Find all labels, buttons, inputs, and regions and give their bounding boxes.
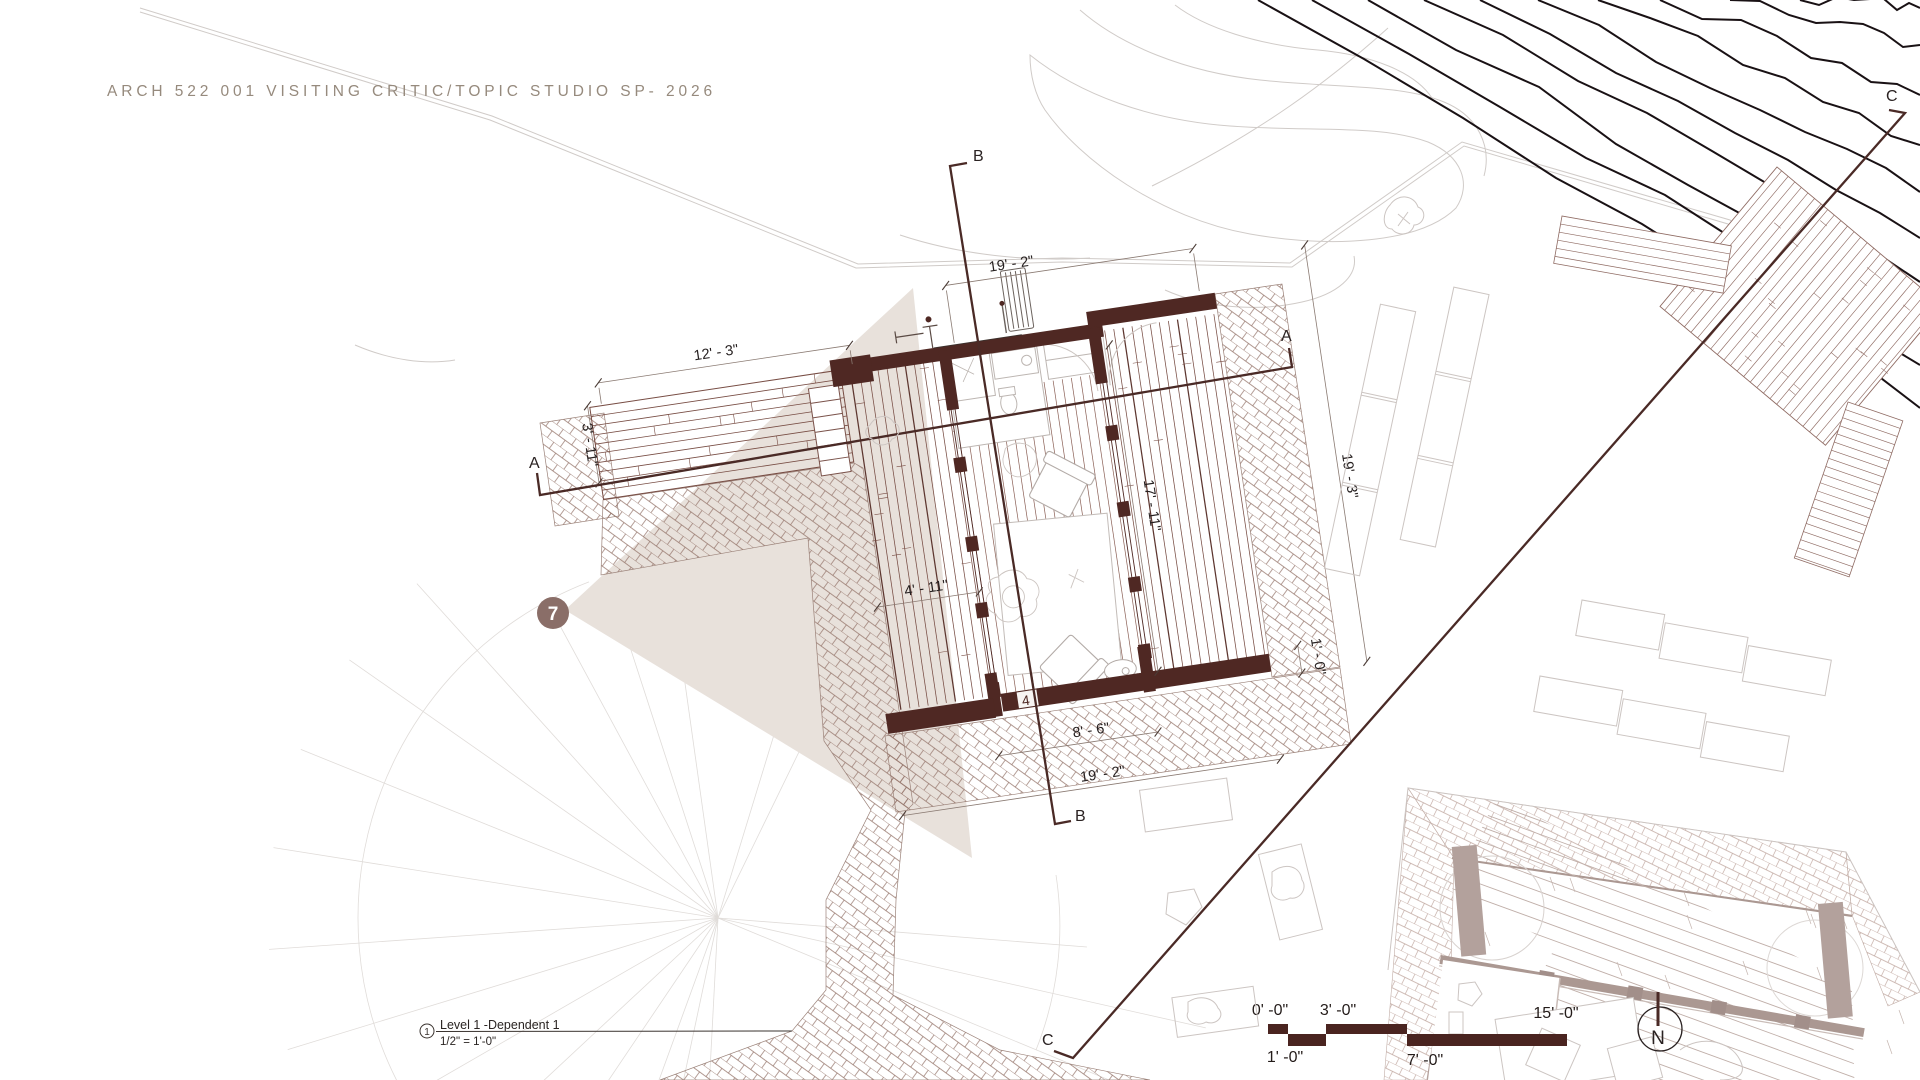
svg-text:1' -0": 1' -0" — [1267, 1049, 1303, 1066]
svg-text:1/2" = 1'-0": 1/2" = 1'-0" — [440, 1036, 496, 1048]
svg-text:B: B — [973, 148, 984, 165]
svg-text:A: A — [1281, 328, 1292, 345]
svg-text:A: A — [529, 455, 540, 472]
svg-text:ARCH 522 001 VISITING CRITIC/T: ARCH 522 001 VISITING CRITIC/TOPIC STUDI… — [107, 83, 716, 100]
svg-text:15' -0": 15' -0" — [1533, 1005, 1578, 1022]
svg-text:N: N — [1651, 1028, 1665, 1049]
svg-text:C: C — [1886, 88, 1898, 105]
svg-text:3' -0": 3' -0" — [1320, 1002, 1356, 1019]
svg-text:C: C — [1042, 1032, 1054, 1049]
svg-text:7' -0": 7' -0" — [1407, 1052, 1443, 1069]
svg-text:7: 7 — [548, 604, 559, 625]
svg-text:Level 1 -Dependent 1: Level 1 -Dependent 1 — [440, 1018, 560, 1032]
svg-text:B: B — [1075, 808, 1086, 825]
svg-text:1: 1 — [424, 1027, 430, 1038]
